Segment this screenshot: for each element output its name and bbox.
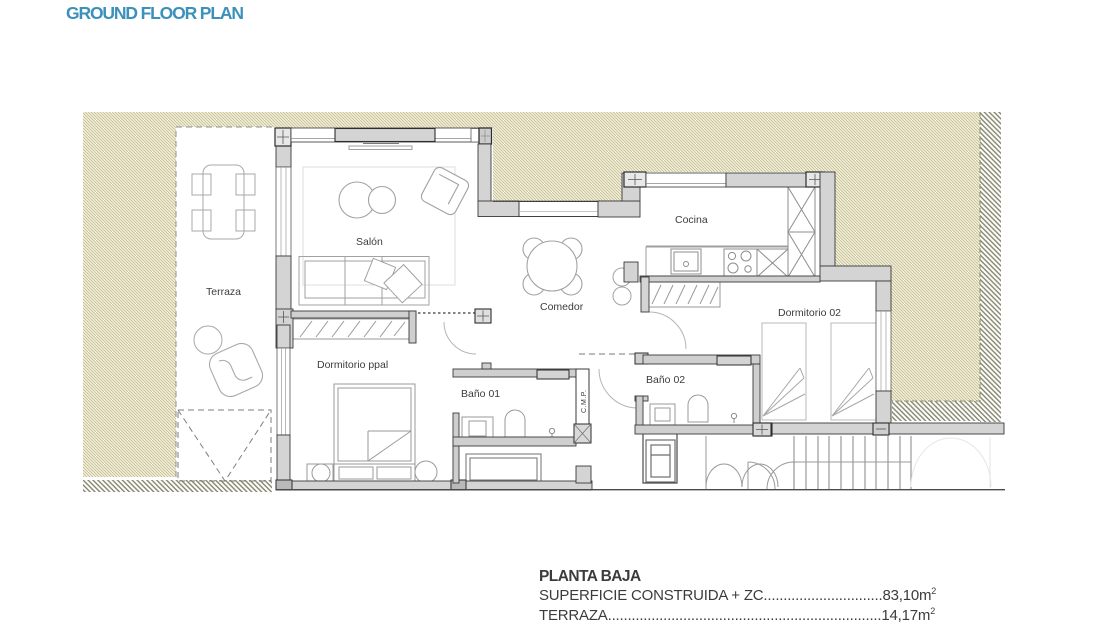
- svg-text:C.M.P.: C.M.P.: [581, 390, 588, 414]
- svg-text:Dormitorio ppal: Dormitorio ppal: [317, 359, 388, 371]
- svg-text:Baño 02: Baño 02: [646, 374, 685, 386]
- svg-text:Baño 01: Baño 01: [461, 388, 500, 400]
- svg-text:Comedor: Comedor: [540, 301, 584, 313]
- svg-text:Terraza: Terraza: [206, 286, 241, 298]
- svg-text:Cocina: Cocina: [675, 214, 708, 226]
- svg-text:Dormitorio 02: Dormitorio 02: [778, 307, 841, 319]
- svg-text:Salón: Salón: [356, 236, 383, 248]
